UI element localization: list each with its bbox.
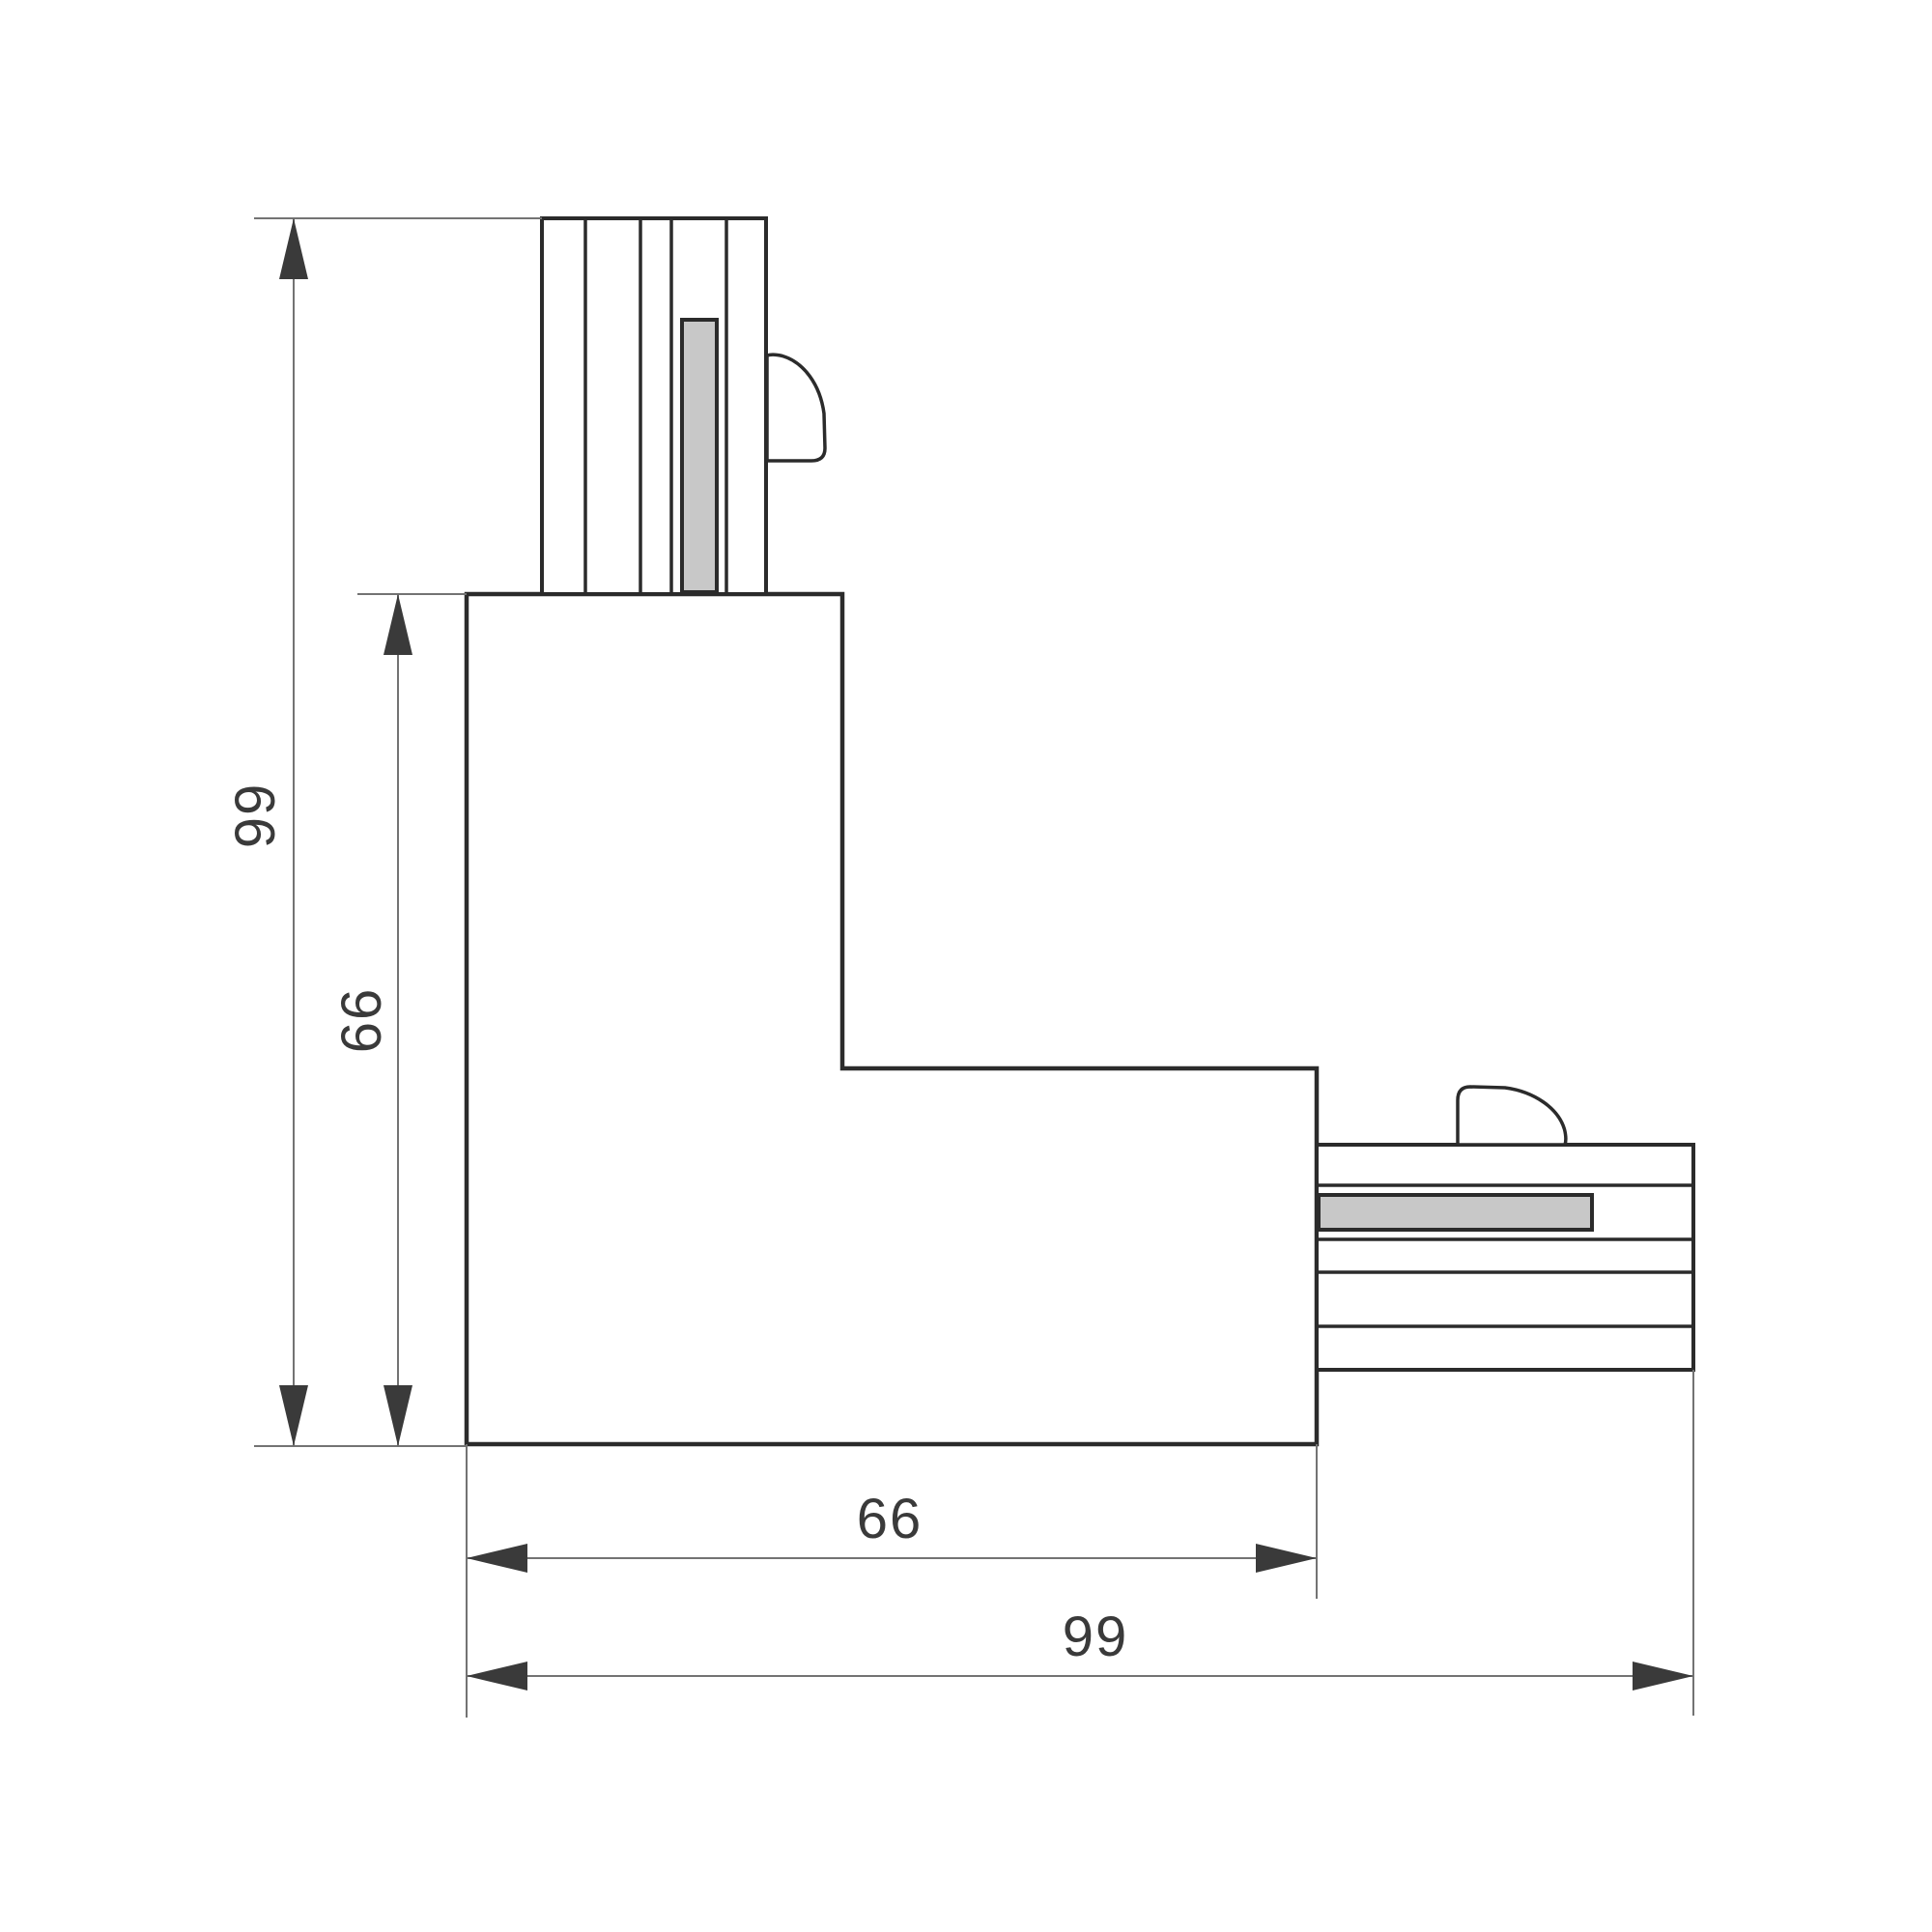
right-connector-housing [1317, 1145, 1693, 1370]
dimension-horizontal-outer: 99 [467, 1605, 1693, 1690]
arrowhead-right [1256, 1544, 1317, 1573]
arrowhead-left [467, 1544, 527, 1573]
top-conductor-bar [682, 320, 717, 592]
right-connector [1317, 1087, 1693, 1370]
arrowhead-up [279, 218, 308, 279]
main-body-outline [467, 594, 1317, 1444]
arrowhead-up [384, 594, 412, 655]
top-connector-housing [542, 218, 766, 594]
dimension-vertical-outer: 99 [224, 218, 308, 1446]
dimension-label-vertical-outer: 99 [224, 782, 287, 849]
right-latch-tab [1458, 1087, 1566, 1145]
top-latch-tab [767, 355, 825, 461]
arrowhead-down [384, 1385, 412, 1446]
arrowhead-right [1633, 1662, 1693, 1690]
arrowhead-left [467, 1662, 527, 1690]
dimension-vertical-inner: 66 [330, 594, 412, 1446]
drawing-canvas: 99 66 66 99 [0, 0, 1932, 1932]
arrowhead-down [279, 1385, 308, 1446]
dimension-horizontal-inner: 66 [467, 1488, 1317, 1573]
dimension-label-horizontal-outer: 99 [1063, 1605, 1129, 1668]
right-conductor-bar [1319, 1195, 1592, 1230]
top-connector [542, 218, 825, 594]
dimension-drawing: 99 66 66 99 [0, 0, 1932, 1932]
dimension-label-vertical-inner: 66 [330, 987, 393, 1054]
dimension-label-horizontal-inner: 66 [857, 1488, 923, 1550]
